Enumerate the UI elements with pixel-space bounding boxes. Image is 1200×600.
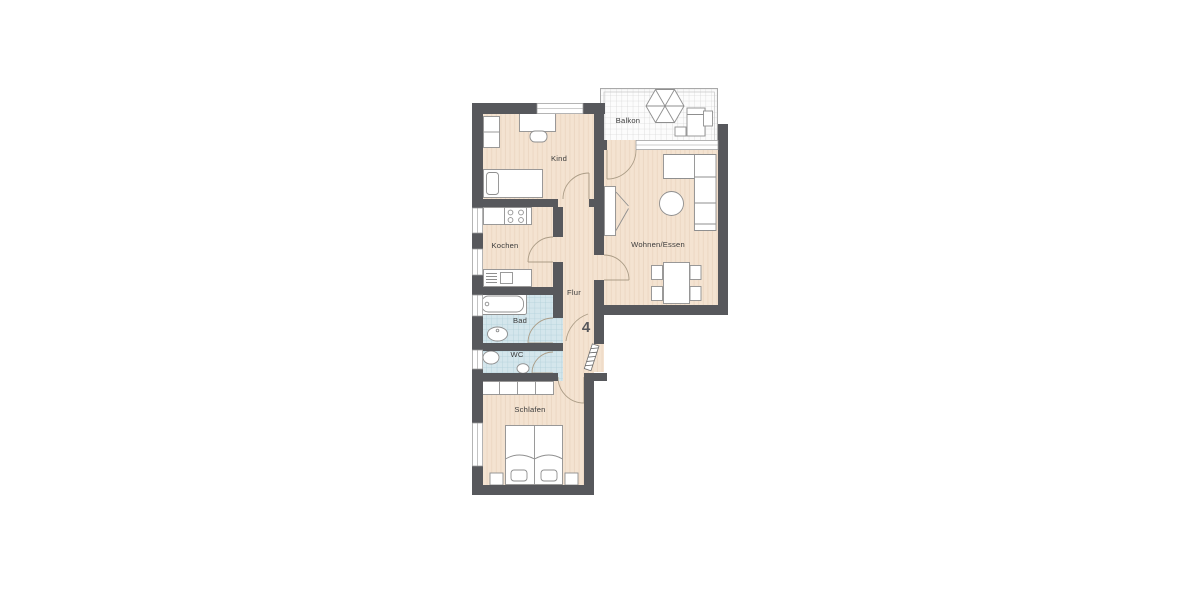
wall-segment [584, 381, 594, 495]
coffee-table [660, 192, 684, 216]
toilet-bowl [483, 351, 499, 364]
dining-table [664, 263, 690, 304]
wall-segment [594, 305, 728, 315]
wall-segment [472, 485, 594, 495]
floor-threshold-wohnen [594, 255, 604, 280]
floor-threshold-balkon [607, 140, 636, 150]
schlafen-wardrobe [482, 382, 554, 395]
window [472, 249, 482, 275]
bed-pillow [487, 173, 499, 195]
label-bad: Bad [513, 316, 527, 325]
nightstand-left [490, 473, 503, 485]
kind-bed [484, 170, 543, 198]
bathtub [479, 294, 527, 315]
double-bed [506, 426, 563, 485]
wall-segment [589, 199, 594, 207]
wall-segment [472, 103, 483, 208]
dining-chair [690, 266, 701, 280]
label-wc: WC [510, 350, 523, 359]
wall-segment [472, 103, 537, 114]
wall-segment [472, 233, 483, 249]
label-flur: Flur [567, 288, 581, 297]
wall-segment [553, 207, 563, 237]
kind-wardrobe [484, 117, 500, 148]
window [472, 350, 482, 369]
wc-sink-bowl [517, 364, 529, 374]
stove [505, 208, 527, 225]
wall-segment [594, 103, 604, 255]
window [636, 140, 718, 149]
dining-chair [652, 266, 663, 280]
bed-pillow [511, 470, 527, 481]
wall-segment [584, 373, 607, 381]
kitchen-counter-stove [484, 208, 532, 225]
wall-segment [472, 199, 558, 207]
dining-chair [652, 287, 663, 301]
window [472, 208, 482, 233]
floorplan-canvas: Kind Kochen Bad WC Schlafen Flur Wohnen/… [0, 0, 1200, 600]
desk-chair [530, 131, 547, 142]
lounger-body [687, 108, 705, 136]
window [472, 423, 482, 466]
label-balkon: Balkon [616, 116, 640, 125]
label-wohnen-essen: Wohnen/Essen [631, 240, 685, 249]
sideboard-body [605, 187, 616, 236]
lounger-side-table [704, 111, 713, 126]
floorplan: Kind Kochen Bad WC Schlafen Flur Wohnen/… [0, 0, 1200, 600]
wall-segment [594, 140, 607, 150]
dining-chair [690, 287, 701, 301]
label-kochen: Kochen [492, 241, 519, 250]
nightstand-right [565, 473, 578, 485]
label-schlafen: Schlafen [514, 405, 545, 414]
window [537, 103, 583, 113]
bed-pillow [541, 470, 557, 481]
wall-segment [472, 373, 558, 381]
wall-segment [718, 124, 728, 315]
bathtub-inner [482, 296, 524, 312]
floor-threshold-kind [558, 199, 563, 207]
kitchen-counter-sink [484, 270, 532, 287]
bad-sink [488, 327, 508, 341]
wall-segment [553, 295, 563, 318]
wall-segment [472, 287, 563, 295]
window [472, 295, 482, 316]
desk-top [520, 113, 556, 132]
wc-sink [517, 364, 529, 374]
label-kind: Kind [551, 154, 567, 163]
balcony-table [675, 127, 686, 136]
sink-basin [501, 273, 513, 284]
apartment-number: 4 [582, 319, 591, 336]
